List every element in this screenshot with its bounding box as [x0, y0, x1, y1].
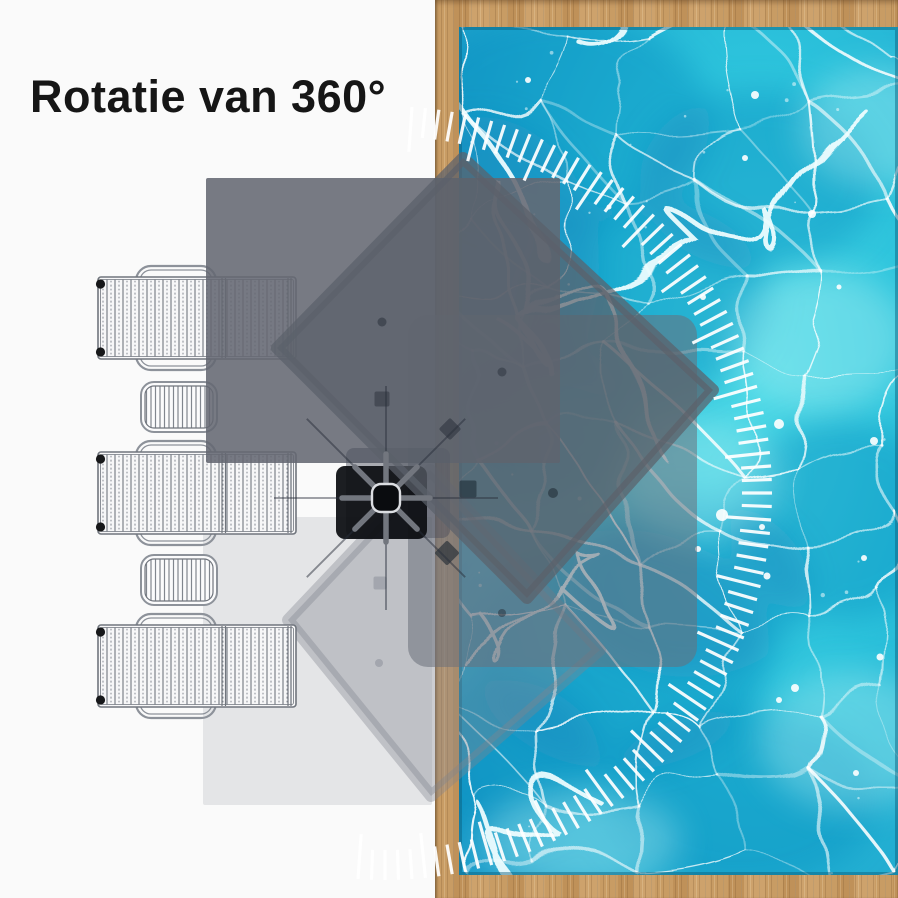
umbrella-base: [336, 466, 427, 539]
pool-deck-wood: [435, 0, 898, 898]
sun-lounger: [96, 266, 296, 370]
page-title: Rotatie van 360°: [30, 74, 386, 119]
sun-lounger: [96, 441, 296, 545]
product-illustration: Rotatie van 360°: [0, 0, 898, 898]
umbrella-hub-spokes: [342, 454, 430, 542]
side-table: [141, 382, 217, 432]
umbrella-pole: [372, 484, 400, 512]
canopy-square-ghost: [203, 517, 432, 805]
sun-lounger: [96, 614, 296, 718]
pool-water-photo: [459, 27, 898, 875]
poolside-furniture: [96, 266, 296, 718]
side-table: [141, 555, 217, 605]
